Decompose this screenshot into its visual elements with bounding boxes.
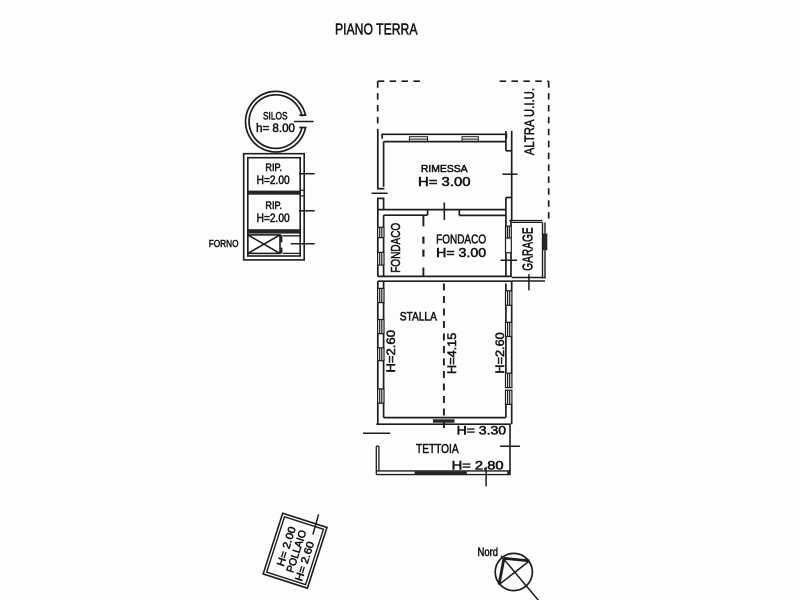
- svg-text:H= 3.00: H= 3.00: [418, 175, 471, 189]
- svg-text:RIMESSA: RIMESSA: [421, 163, 468, 175]
- svg-text:H= 3.00: H= 3.00: [436, 246, 486, 260]
- svg-text:H=2.00: H=2.00: [257, 173, 290, 187]
- svg-text:PIANO TERRA: PIANO TERRA: [335, 22, 418, 39]
- svg-text:H=2.60: H=2.60: [493, 332, 507, 373]
- svg-text:H=2.60: H=2.60: [384, 330, 398, 373]
- svg-text:TETTOIA: TETTOIA: [416, 441, 459, 456]
- svg-text:H=2.00: H=2.00: [257, 211, 290, 225]
- svg-text:GARAGE: GARAGE: [521, 227, 537, 271]
- svg-text:h= 8.00: h= 8.00: [256, 121, 295, 135]
- svg-text:FORNO: FORNO: [209, 239, 239, 250]
- svg-text:FONDACO: FONDACO: [436, 233, 486, 247]
- svg-text:H=4.15: H=4.15: [445, 333, 459, 374]
- svg-text:FONDACO: FONDACO: [389, 223, 403, 273]
- svg-text:Nord: Nord: [478, 545, 499, 559]
- svg-text:H= 3.30: H= 3.30: [457, 424, 507, 438]
- svg-text:STALLA: STALLA: [400, 311, 437, 323]
- svg-text:ALTRA U.I.U.: ALTRA U.I.U.: [522, 88, 538, 155]
- svg-text:H= 2.80: H= 2.80: [452, 459, 504, 472]
